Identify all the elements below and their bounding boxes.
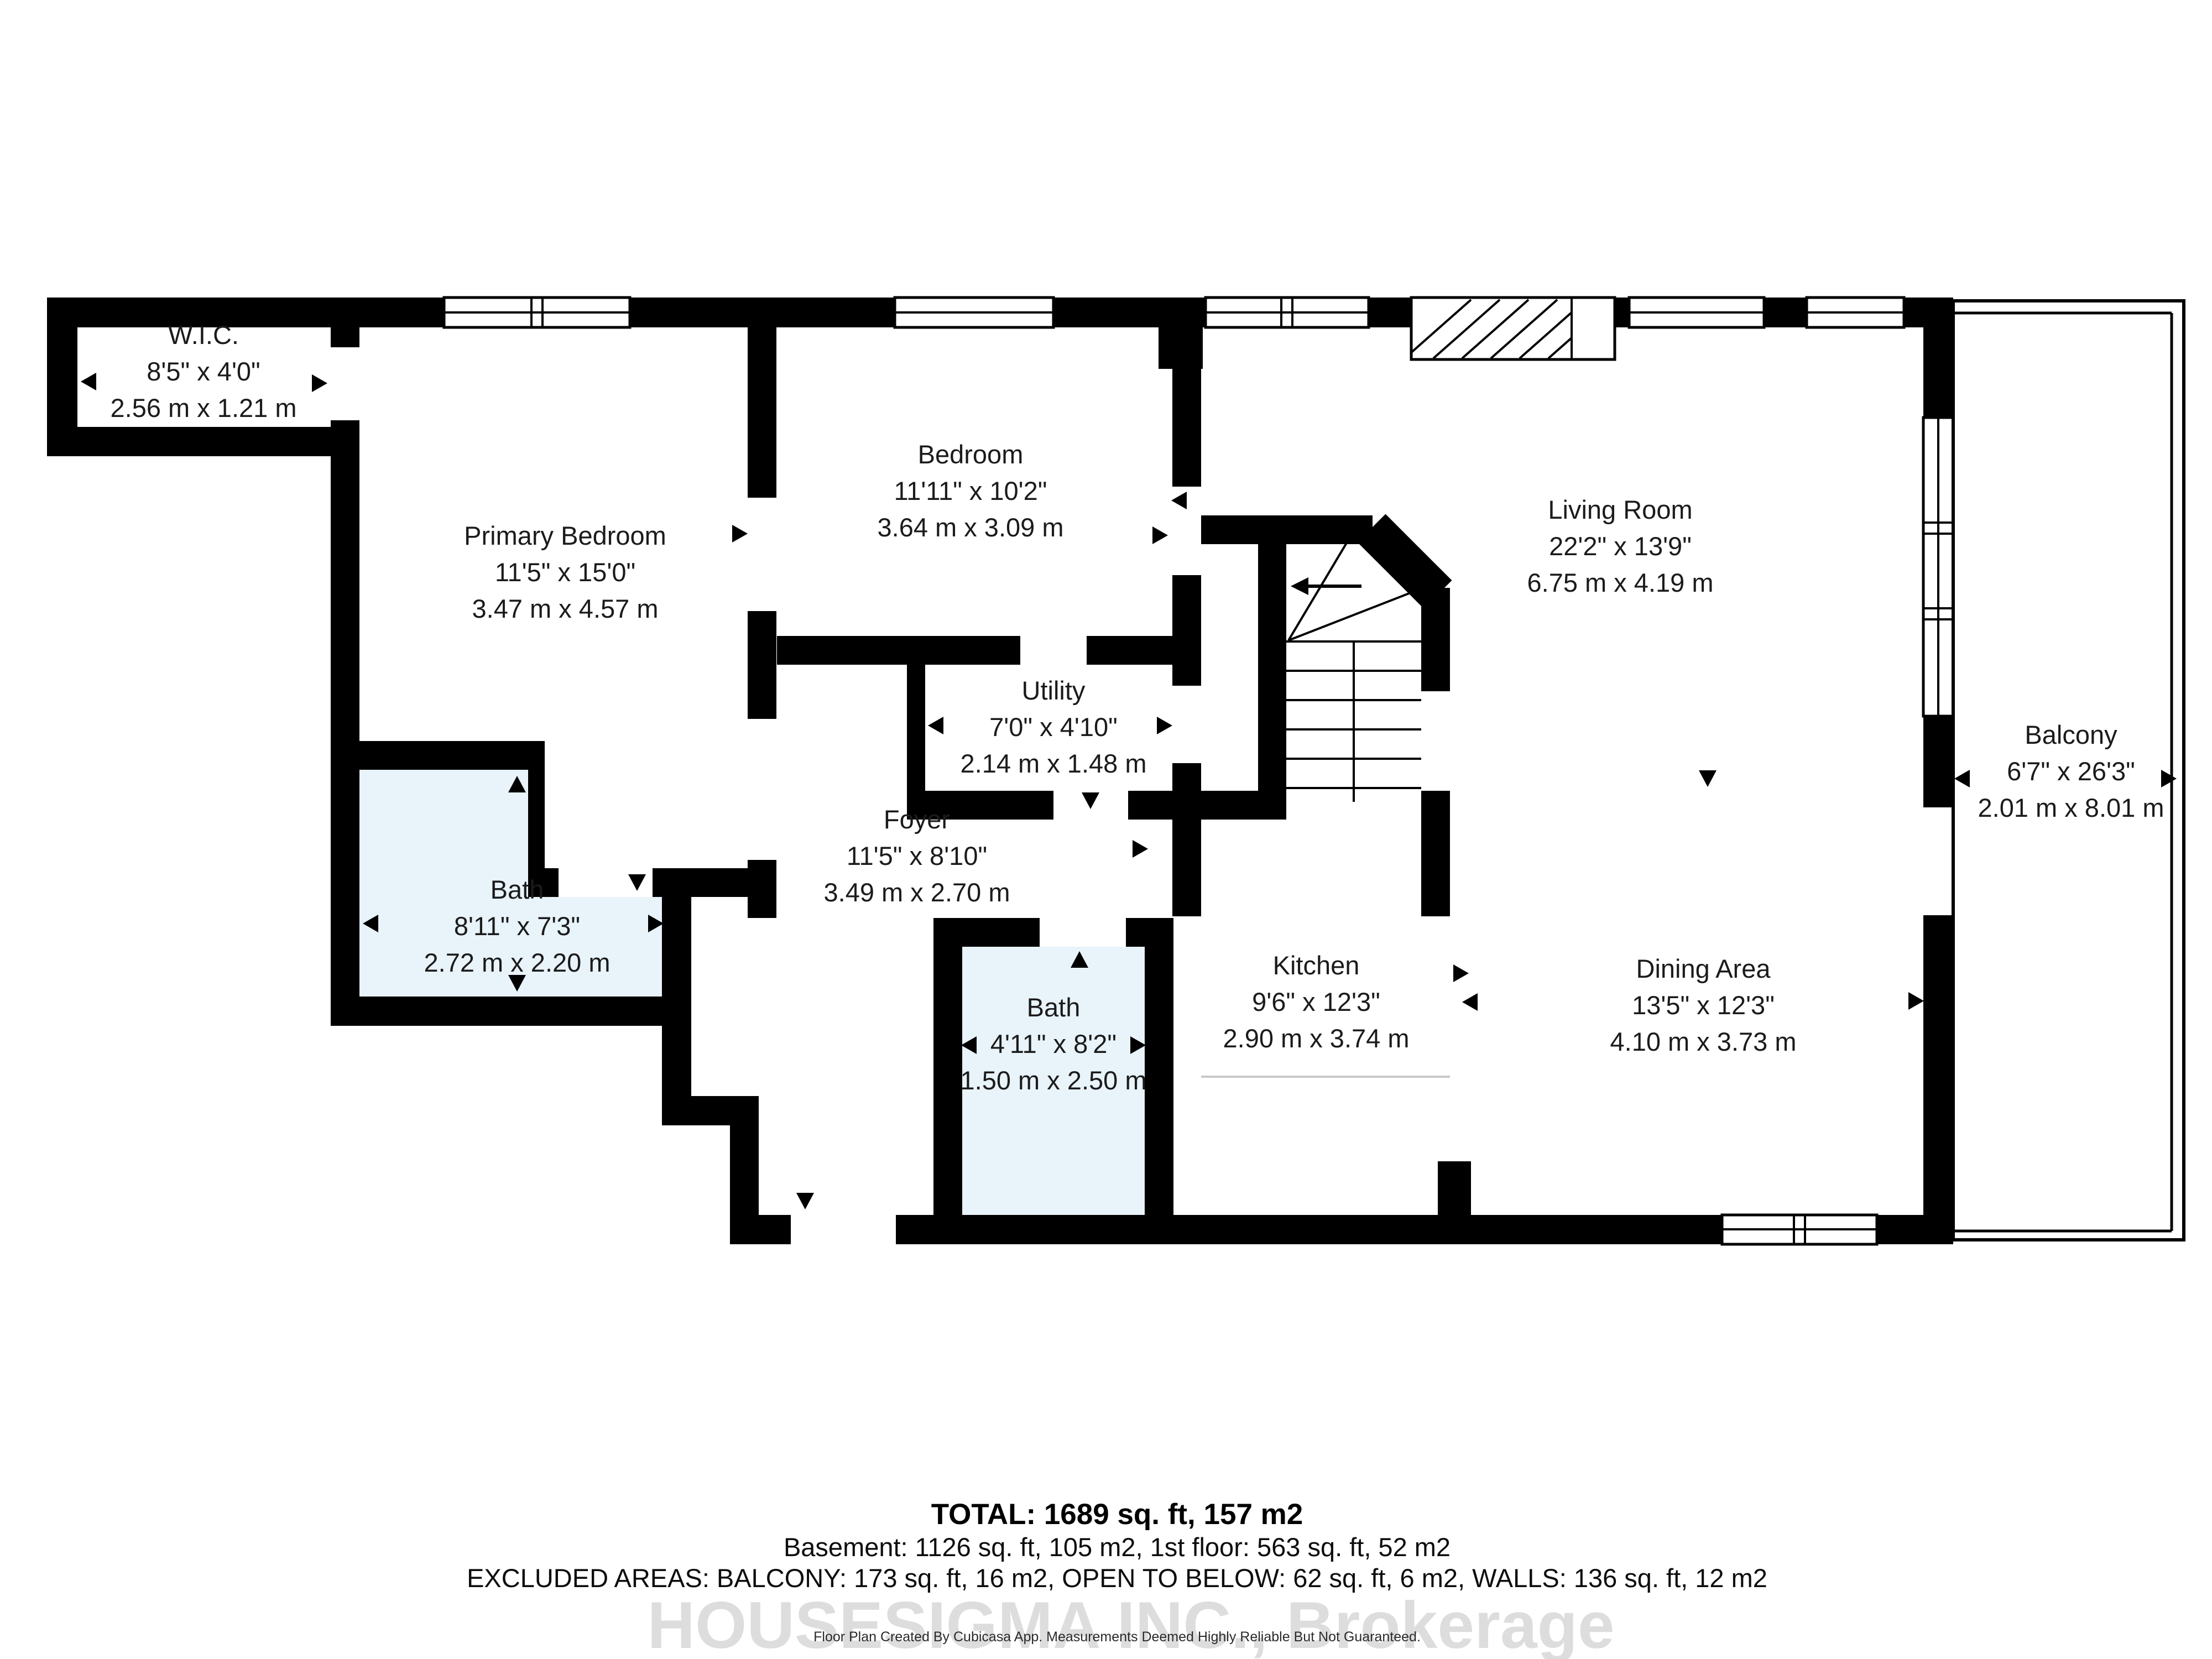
room-dims-imperial: 8'5" x 4'0" <box>147 357 260 386</box>
room-dims-imperial: 7'0" x 4'10" <box>989 712 1118 742</box>
window-icon <box>444 298 630 327</box>
summary-block: TOTAL: 1689 sq. ft, 157 m2 Basement: 112… <box>467 1498 1767 1593</box>
room-label-bedroom: Bedroom 11'11" x 10'2" 3.64 m x 3.09 m <box>878 440 1064 542</box>
arrow-left-icon <box>81 373 96 390</box>
arrow-down-icon <box>1699 770 1717 787</box>
room-name: W.I.C. <box>168 320 239 349</box>
window-icon <box>1923 418 1953 716</box>
arrow-right-icon <box>1157 717 1172 734</box>
room-dims-imperial: 11'11" x 10'2" <box>894 476 1047 505</box>
floor-plan-credit: Floor Plan Created By Cubicasa App. Meas… <box>813 1629 1421 1645</box>
room-label-utility: Utility 7'0" x 4'10" 2.14 m x 1.48 m <box>961 676 1147 778</box>
brokerage-watermark: HOUSESIGMA INC., Brokerage <box>647 1588 1614 1659</box>
arrow-left-icon <box>1171 492 1187 509</box>
room-dims-imperial: 11'5" x 15'0" <box>495 557 635 587</box>
room-name: Bath <box>491 875 544 904</box>
room-label-kitchen: Kitchen 9'6" x 12'3" 2.90 m x 3.74 m <box>1223 951 1410 1053</box>
floor-plan: Bath 4'11" x 8'2" 1.50 m x 2.50 m <box>0 0 2212 1659</box>
room-label-dining-area: Dining Area 13'5" x 12'3" 4.10 m x 3.73 … <box>1610 954 1797 1056</box>
window-icon <box>1807 298 1904 327</box>
window-icon <box>895 298 1053 327</box>
room-name: Living Room <box>1548 495 1692 524</box>
room-label-primary-bedroom: Primary Bedroom 11'5" x 15'0" 3.47 m x 4… <box>464 521 666 623</box>
arrow-down-icon <box>628 874 646 891</box>
room-label-foyer: Foyer 11'5" x 8'10" 3.49 m x 2.70 m <box>824 805 1010 907</box>
room-dims-metric: 6.75 m x 4.19 m <box>1527 568 1714 597</box>
room-dims-imperial: 6'7" x 26'3" <box>2007 757 2135 786</box>
room-dims-metric: 2.72 m x 2.20 m <box>424 948 611 977</box>
room-dims-imperial: 11'5" x 8'10" <box>847 841 987 870</box>
floor-areas-text: Basement: 1126 sq. ft, 105 m2, 1st floor… <box>784 1532 1451 1562</box>
room-name: Balcony <box>2025 720 2117 749</box>
arrow-right-icon <box>732 525 748 542</box>
arrow-right-icon <box>2161 770 2177 787</box>
arrow-left-icon <box>928 717 943 734</box>
arrow-down-icon <box>1082 792 1099 809</box>
room-label-balcony: Balcony 6'7" x 26'3" 2.01 m x 8.01 m <box>1978 720 2164 822</box>
excluded-areas-text: EXCLUDED AREAS: BALCONY: 173 sq. ft, 16 … <box>467 1563 1767 1593</box>
arrow-left-icon <box>1462 993 1478 1011</box>
room-dims-metric: 1.50 m x 2.50 m <box>961 1066 1147 1095</box>
room-name: Primary Bedroom <box>464 521 666 550</box>
stairs-direction-arrow-icon <box>1291 577 1361 595</box>
room-dims-metric: 2.90 m x 3.74 m <box>1223 1024 1410 1053</box>
arrow-right-icon <box>312 374 327 392</box>
arrow-right-icon <box>1152 526 1168 544</box>
arrow-down-icon <box>796 1193 814 1209</box>
window-icon <box>1722 1215 1877 1244</box>
room-dims-metric: 2.56 m x 1.21 m <box>111 393 297 422</box>
room-dims-metric: 3.49 m x 2.70 m <box>824 878 1010 907</box>
hatched-area-icon <box>1405 298 1615 359</box>
room-dims-imperial: 9'6" x 12'3" <box>1252 987 1380 1016</box>
room-dims-metric: 2.14 m x 1.48 m <box>961 749 1147 778</box>
room-name: Foyer <box>884 805 950 834</box>
arrow-right-icon <box>1908 992 1924 1010</box>
room-dims-imperial: 13'5" x 12'3" <box>1632 990 1775 1020</box>
room-name: Utility <box>1022 676 1086 705</box>
room-dims-imperial: 4'11" x 8'2" <box>990 1029 1117 1058</box>
room-name: Dining Area <box>1636 954 1771 983</box>
room-dims-metric: 3.64 m x 3.09 m <box>878 513 1064 542</box>
arrow-right-icon <box>1133 840 1148 858</box>
room-dims-imperial: 22'2" x 13'9" <box>1549 531 1692 561</box>
room-name: Bedroom <box>918 440 1024 469</box>
room-dims-metric: 3.47 m x 4.57 m <box>472 594 659 623</box>
room-name: Kitchen <box>1273 951 1360 980</box>
floor-plan-drawing: Bath 4'11" x 8'2" 1.50 m x 2.50 m <box>0 0 2212 1659</box>
total-area-text: TOTAL: 1689 sq. ft, 157 m2 <box>931 1498 1303 1531</box>
window-icon <box>1206 298 1369 327</box>
arrow-left-icon <box>1954 770 1970 787</box>
arrow-right-icon <box>1453 964 1469 982</box>
room-label-living-room: Living Room 22'2" x 13'9" 6.75 m x 4.19 … <box>1527 495 1714 597</box>
room-dims-imperial: 8'11" x 7'3" <box>454 911 580 941</box>
room-name: Bath <box>1027 993 1081 1022</box>
room-dims-metric: 4.10 m x 3.73 m <box>1610 1027 1797 1056</box>
room-dims-metric: 2.01 m x 8.01 m <box>1978 793 2164 822</box>
window-icon <box>1629 298 1764 327</box>
room-label-wic: W.I.C. 8'5" x 4'0" 2.56 m x 1.21 m <box>111 320 297 422</box>
